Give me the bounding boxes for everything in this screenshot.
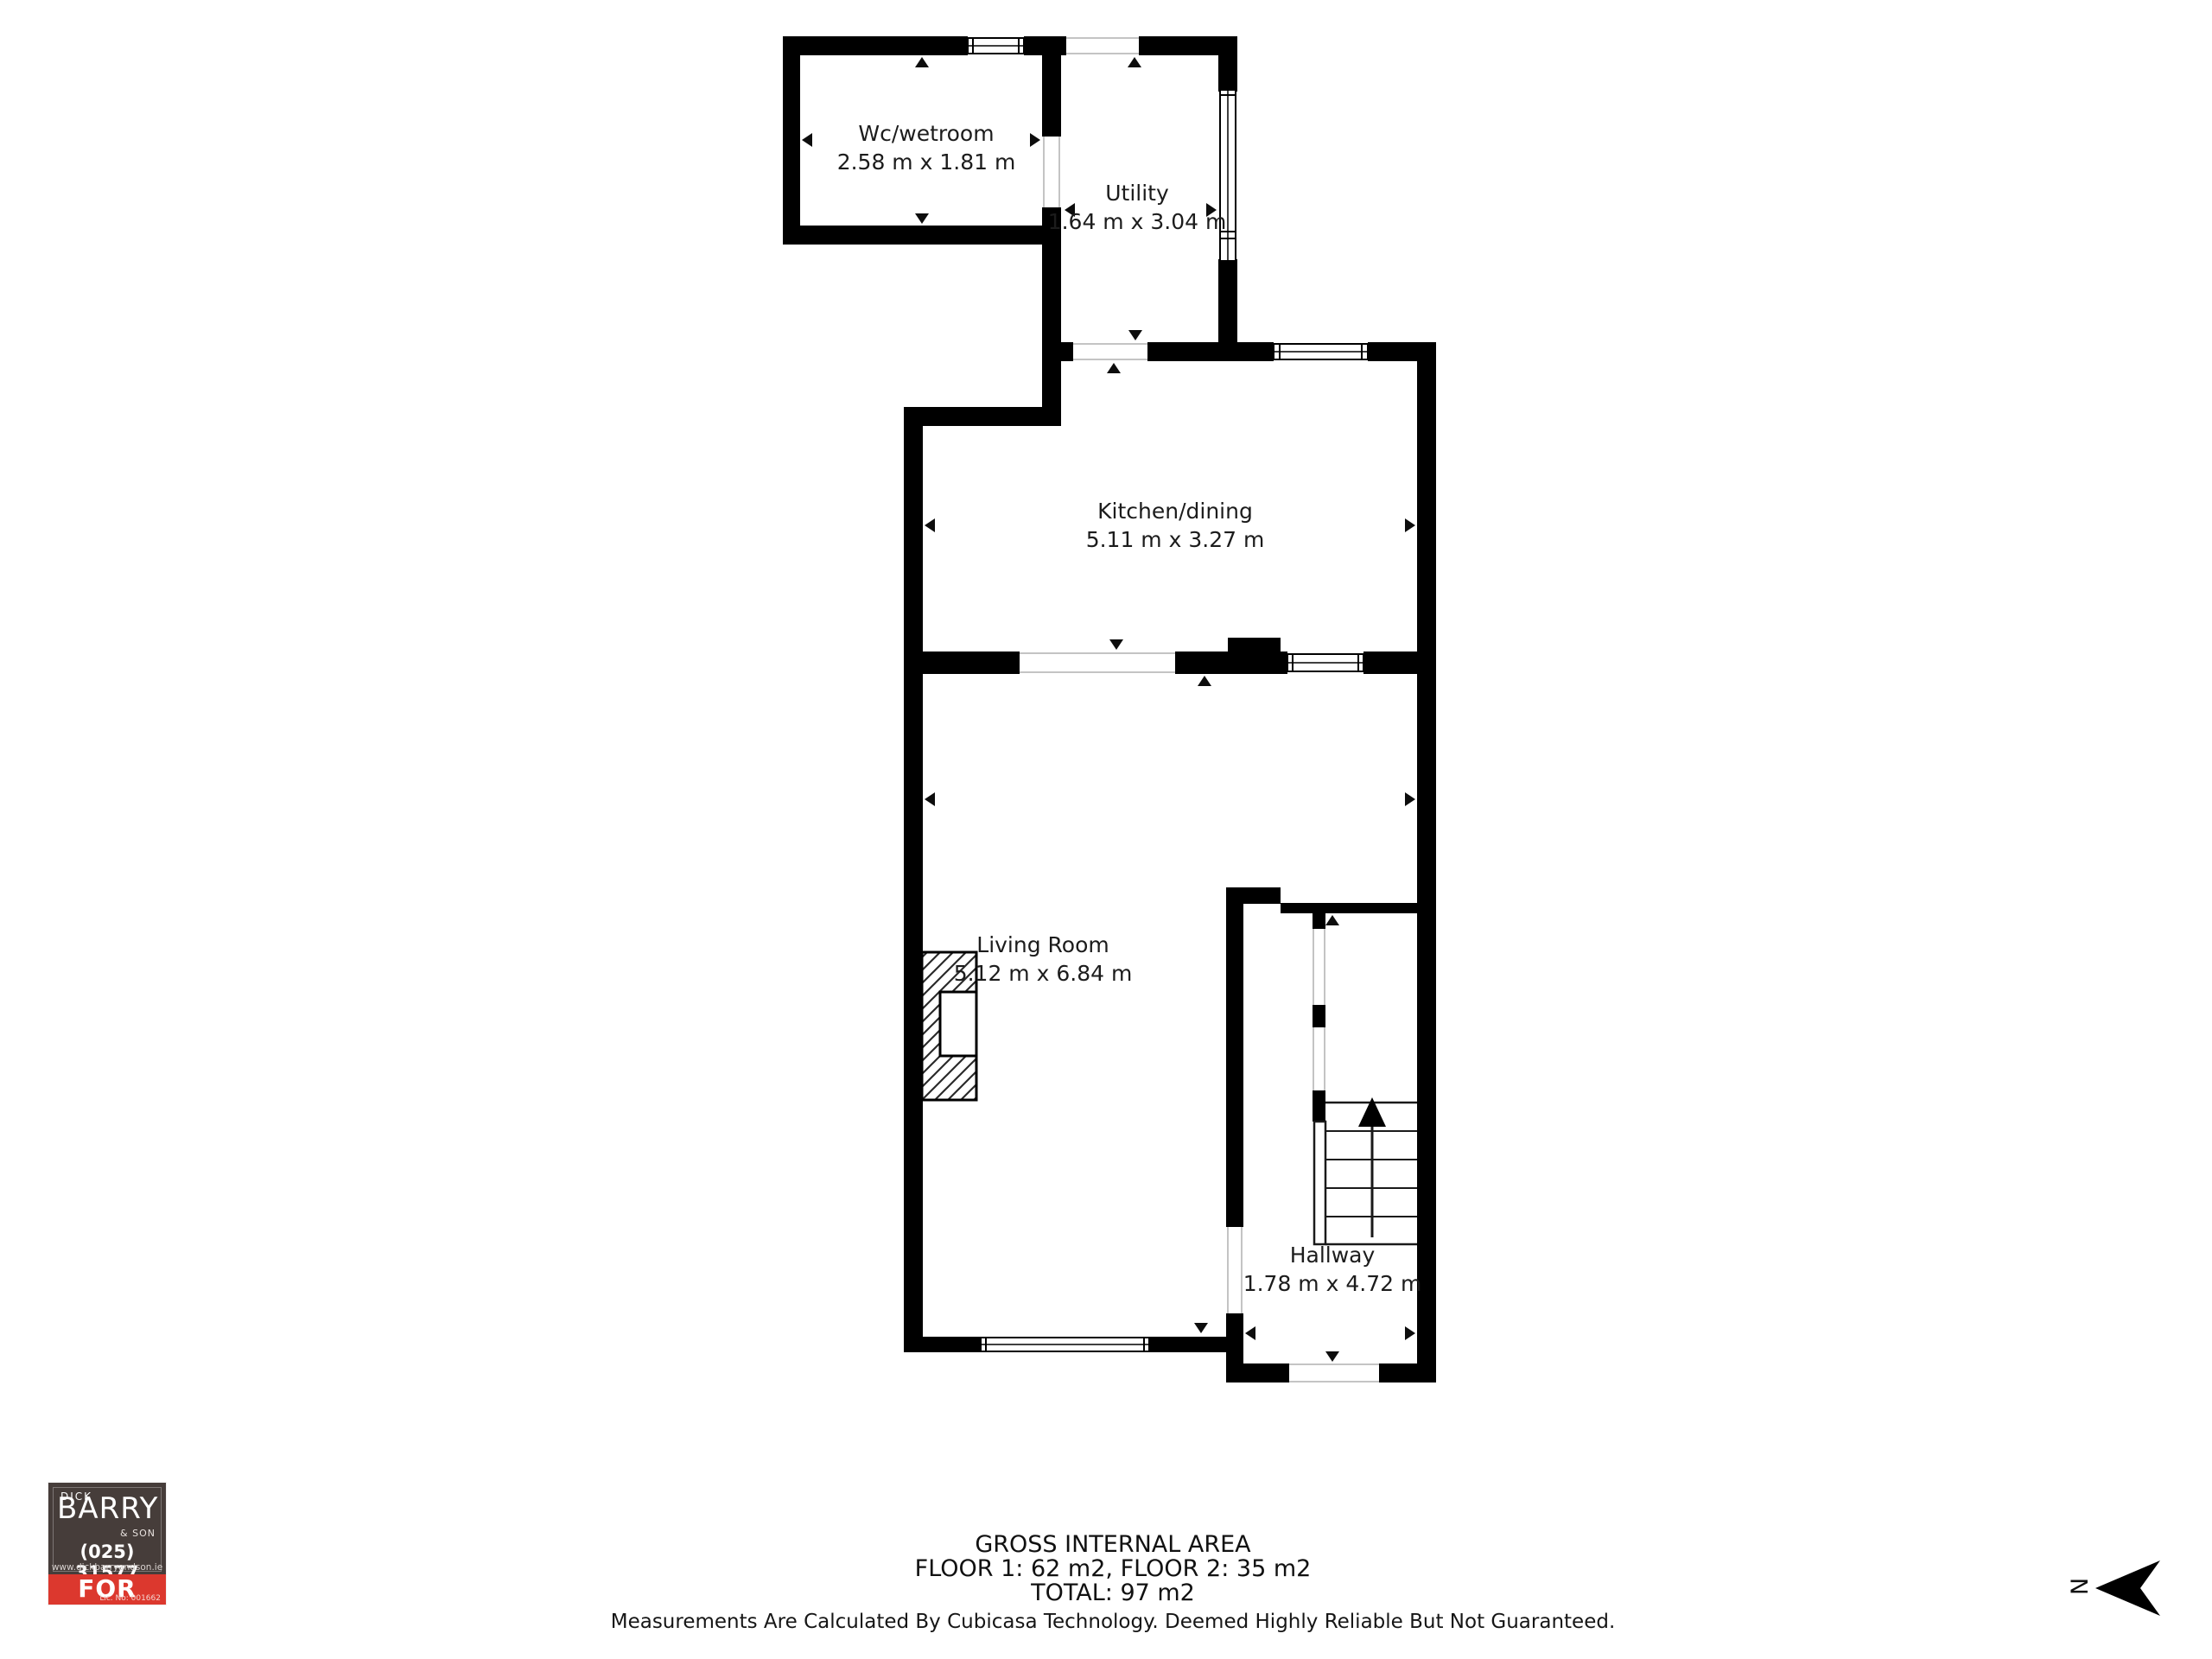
room-name-hallway: Hallway bbox=[1290, 1243, 1376, 1268]
walls bbox=[783, 36, 1436, 1382]
total-area-line: TOTAL: 97 m2 bbox=[611, 1581, 1616, 1605]
logo-suffix: & SON bbox=[120, 1528, 156, 1539]
logo-banner-text: FOR SALE bbox=[48, 1574, 166, 1631]
logo-dark-panel: DICK BARRY & SON (025) 31577 www.dickbar… bbox=[48, 1483, 166, 1574]
logo-license: Lic. No: 001662 bbox=[99, 1594, 161, 1603]
stairs bbox=[1314, 1097, 1417, 1244]
room-dims-living: 5.12 m x 6.84 m bbox=[954, 961, 1133, 986]
room-name-living: Living Room bbox=[976, 932, 1109, 957]
compass-north-label: N bbox=[2065, 1578, 2092, 1595]
floorplan-canvas: Wc/wetroom 2.58 m x 1.81 m Utility 1.64 … bbox=[0, 0, 2212, 1659]
utility-window bbox=[1220, 90, 1236, 261]
kitchen-top-window bbox=[1274, 344, 1368, 359]
floorplan-page: Wc/wetroom 2.58 m x 1.81 m Utility 1.64 … bbox=[0, 0, 2212, 1659]
room-name-wc: Wc/wetroom bbox=[858, 121, 994, 146]
logo-main-name: BARRY bbox=[57, 1494, 158, 1523]
room-dims-hallway: 1.78 m x 4.72 m bbox=[1243, 1271, 1422, 1296]
living-room-window bbox=[981, 1338, 1149, 1351]
kitchen-internal-window bbox=[1287, 654, 1363, 671]
gross-internal-area-title: GROSS INTERNAL AREA bbox=[611, 1533, 1616, 1557]
room-dims-wc: 2.58 m x 1.81 m bbox=[837, 149, 1016, 175]
room-labels: Wc/wetroom 2.58 m x 1.81 m Utility 1.64 … bbox=[837, 121, 1422, 1296]
room-dims-utility: 1.64 m x 3.04 m bbox=[1048, 209, 1227, 234]
room-name-utility: Utility bbox=[1105, 181, 1169, 206]
estate-agent-logo: DICK BARRY & SON (025) 31577 www.dickbar… bbox=[48, 1483, 166, 1605]
logo-website: www.dickbarryandson.ie bbox=[48, 1562, 166, 1573]
logo-for-sale-banner: FOR SALE Lic. No: 001662 bbox=[48, 1574, 166, 1605]
compass: N bbox=[2065, 1560, 2161, 1616]
north-arrow-icon bbox=[2095, 1560, 2160, 1616]
room-dims-kitchen: 5.11 m x 3.27 m bbox=[1086, 527, 1265, 552]
footer-area-summary: GROSS INTERNAL AREA FLOOR 1: 62 m2, FLOO… bbox=[611, 1533, 1616, 1633]
wc-window bbox=[968, 38, 1024, 54]
room-name-kitchen: Kitchen/dining bbox=[1097, 499, 1253, 524]
measurement-disclaimer: Measurements Are Calculated By Cubicasa … bbox=[611, 1611, 1616, 1633]
floor-areas-line: FLOOR 1: 62 m2, FLOOR 2: 35 m2 bbox=[611, 1557, 1616, 1581]
